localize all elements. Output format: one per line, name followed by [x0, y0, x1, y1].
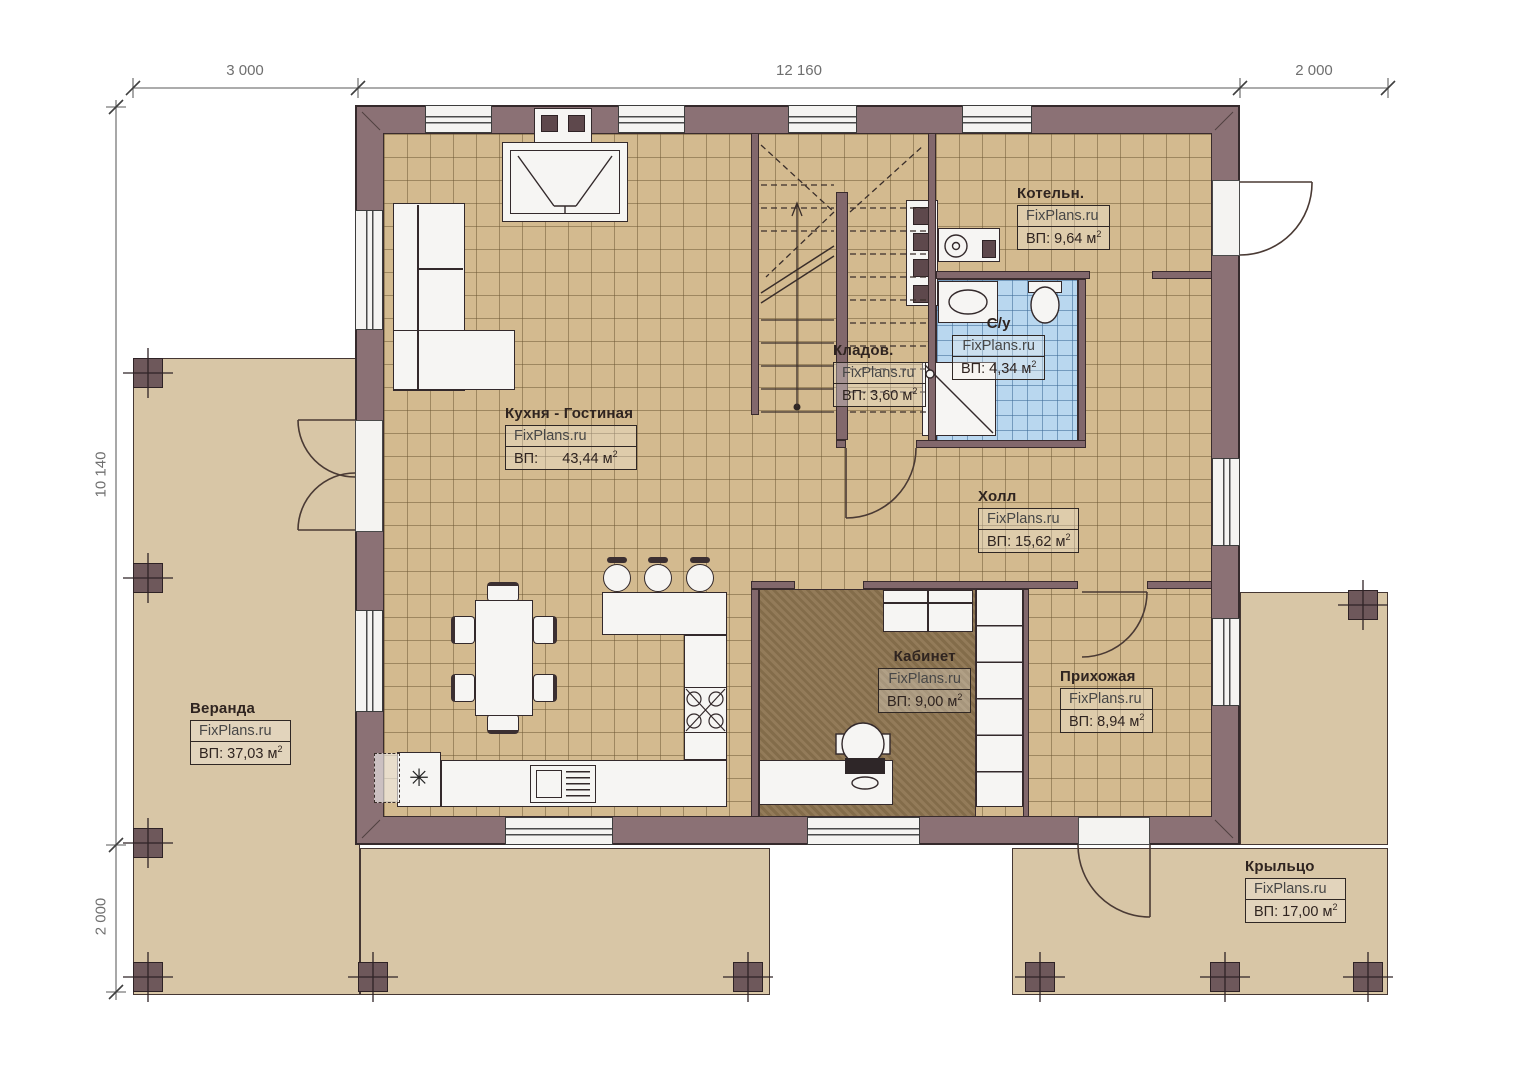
watermark: FixPlans.ru [953, 336, 1044, 357]
watermark: FixPlans.ru [191, 721, 290, 742]
room-area: ВП: 37,03 м2 [191, 742, 290, 764]
room-area: ВП: 9,64 м2 [1018, 227, 1109, 249]
room-name: Холл [978, 488, 1079, 505]
room-label-storage: Кладов. FixPlans.ru ВП: 3,60 м2 [833, 342, 926, 407]
watermark: FixPlans.ru [979, 509, 1078, 530]
watermark: FixPlans.ru [1018, 206, 1109, 227]
dim-left-10140: 10 140 [93, 425, 110, 525]
dim-top-3000: 3 000 [195, 62, 295, 79]
fireplace-lines [518, 156, 612, 214]
dim-left-2000: 2 000 [93, 867, 110, 967]
room-label-porch: Крыльцо FixPlans.ru ВП: 17,00 м2 [1245, 858, 1346, 923]
watermark: FixPlans.ru [834, 363, 925, 384]
room-area: ВП: 4,34 м2 [953, 357, 1044, 379]
room-area: ВП: 43,44 м2 [506, 447, 636, 469]
room-name: Котельн. [1017, 185, 1110, 202]
door-swings [298, 182, 1312, 917]
office-chair [836, 723, 890, 789]
room-area: ВП: 8,94 м2 [1061, 710, 1152, 732]
room-name: Кухня - Гостиная [505, 405, 637, 422]
watermark: FixPlans.ru [506, 426, 636, 447]
watermark: FixPlans.ru [1246, 879, 1345, 900]
room-area: ВП: 9,00 м2 [879, 690, 970, 712]
dim-top-12160: 12 160 [749, 62, 849, 79]
room-name: Кабинет [878, 648, 971, 665]
room-area: ВП: 3,60 м2 [834, 384, 925, 406]
room-label-veranda: Веранда FixPlans.ru ВП: 37,03 м2 [190, 700, 291, 765]
room-label-kitchen-living: Кухня - Гостиная FixPlans.ru ВП: 43,44 м… [505, 405, 637, 470]
room-name: Веранда [190, 700, 291, 717]
room-name: Прихожая [1060, 668, 1153, 685]
dimension-lines [106, 78, 1388, 1000]
room-name: Крыльцо [1245, 858, 1346, 875]
dim-top-2000: 2 000 [1264, 62, 1364, 79]
room-label-office: Кабинет FixPlans.ru ВП: 9,00 м2 [878, 648, 971, 713]
watermark: FixPlans.ru [879, 669, 970, 690]
room-label-hall: Холл FixPlans.ru ВП: 15,62 м2 [978, 488, 1079, 553]
watermark: FixPlans.ru [1061, 689, 1152, 710]
room-label-entry: Прихожая FixPlans.ru ВП: 8,94 м2 [1060, 668, 1153, 733]
room-area: ВП: 15,62 м2 [979, 530, 1078, 552]
room-name: С/у [952, 315, 1045, 332]
post-axis-ticks [123, 348, 1393, 1002]
dimension-ticks [109, 81, 1395, 999]
room-name: Кладов. [833, 342, 926, 359]
room-area: ВП: 17,00 м2 [1246, 900, 1345, 922]
floor-plan-canvas: ✳ [0, 0, 1528, 1080]
room-label-boiler: Котельн. FixPlans.ru ВП: 9,64 м2 [1017, 185, 1110, 250]
stove-burners [686, 689, 725, 731]
room-label-bathroom: С/у FixPlans.ru ВП: 4,34 м2 [952, 315, 1045, 380]
